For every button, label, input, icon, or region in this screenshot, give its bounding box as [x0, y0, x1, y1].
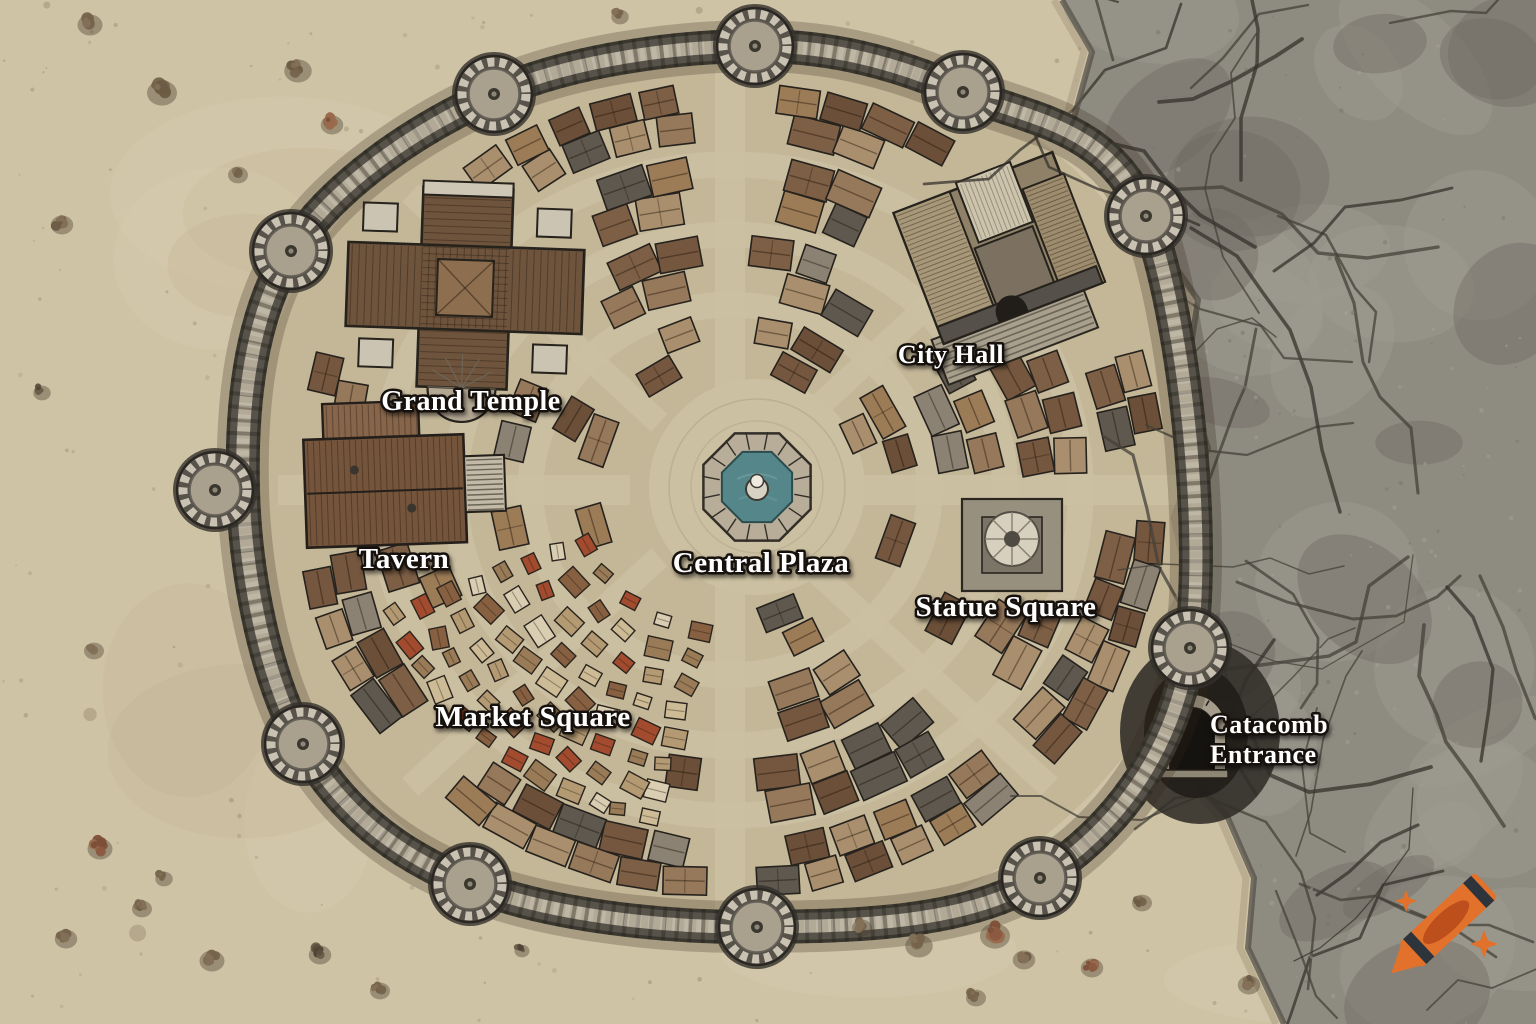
market-stall [688, 621, 713, 642]
label-central-plaza: Central Plaza [673, 547, 849, 579]
label-catacomb-line1: Catacomb [1210, 710, 1328, 739]
building-rooftop [932, 431, 969, 474]
market-stall [655, 757, 672, 770]
label-catacomb-line2: Entrance [1210, 740, 1317, 769]
wall-tower [428, 842, 512, 926]
label-grand-temple: Grand Temple [381, 386, 560, 417]
shrub [1013, 951, 1036, 970]
wall-tower [452, 52, 536, 136]
market-stall [665, 701, 687, 720]
market-stall [640, 808, 661, 826]
wall-tower [1104, 174, 1188, 258]
building-rooftop [663, 866, 707, 895]
statue-monument [962, 499, 1062, 591]
market-stall [661, 727, 688, 750]
wall-tower [998, 836, 1082, 920]
shrub [1132, 895, 1152, 912]
market-stall [550, 542, 566, 561]
shrub [84, 643, 104, 660]
central-fountain [702, 432, 812, 542]
wall-tower [261, 702, 345, 786]
shrub [1081, 959, 1104, 978]
label-market-square: Market Square [435, 701, 630, 733]
market-stall [643, 667, 663, 684]
building-rooftop [776, 85, 820, 118]
wall-tower [249, 209, 333, 293]
shrub [228, 167, 248, 184]
market-stall [609, 802, 625, 815]
wall-tower [713, 4, 797, 88]
building-rooftop [617, 857, 661, 891]
building-rooftop [748, 236, 793, 271]
building-rooftop [1054, 438, 1087, 474]
building-rooftop [1128, 393, 1162, 434]
label-tavern: Tavern [359, 543, 450, 575]
wall-tower [1148, 606, 1232, 690]
building-rooftop [639, 85, 679, 120]
wall-tower [173, 448, 257, 532]
market-stall [429, 626, 450, 650]
market-stall [644, 636, 673, 661]
building-rooftop [1017, 437, 1055, 477]
wall-tower [715, 885, 799, 969]
wall-tower [921, 50, 1005, 134]
fantasy-city-map: Grand Temple City Hall Tavern Central Pl… [0, 0, 1536, 1024]
label-statue-square: Statue Square [916, 591, 1097, 623]
market-stall [468, 576, 485, 596]
building-rooftop [754, 317, 792, 348]
fantasy-city-map-image: Grand Temple City Hall Tavern Central Pl… [0, 0, 1536, 1024]
building-rooftop [656, 113, 695, 147]
label-city-hall: City Hall [898, 340, 1004, 369]
